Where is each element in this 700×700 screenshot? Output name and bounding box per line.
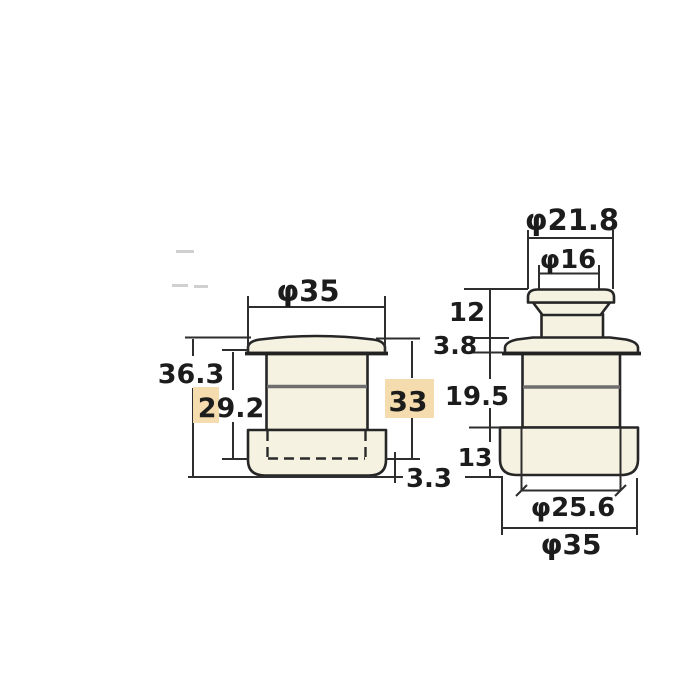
left-side-height-label: 33: [389, 385, 428, 418]
drawing-canvas: φ35 36.3 29.2 33 3.3: [0, 0, 700, 700]
right-base-height-label: 13: [458, 443, 493, 472]
right-view: φ21.8 φ16 12 3.8 19.5 13 φ25.6 φ35: [433, 203, 641, 561]
left-view: φ35 36.3 29.2 33 3.3: [157, 274, 452, 494]
right-dia-base-outer-label: φ35: [541, 528, 602, 561]
scan-artifact: [176, 250, 194, 253]
dimension-drawing: φ35 36.3 29.2 33 3.3: [0, 0, 700, 700]
left-bottom-offset-label: 3.3: [406, 464, 452, 494]
right-knob-height-label: 12: [449, 298, 485, 328]
right-dia-base-inner-label: φ25.6: [531, 493, 616, 523]
right-body-height-label: 19.5: [445, 382, 509, 412]
scan-artifact: [172, 284, 188, 287]
scan-artifacts: [172, 250, 208, 288]
left-inner-height-label: 29.2: [198, 393, 265, 424]
right-stem: [542, 314, 604, 340]
right-cap: [528, 290, 614, 303]
left-total-height-label: 36.3: [158, 359, 225, 390]
right-body: [523, 354, 621, 428]
right-flange-height-label: 3.8: [433, 331, 477, 360]
left-flange: [248, 336, 385, 353]
right-dia-cap-label: φ21.8: [525, 203, 619, 237]
right-dia-stem-label: φ16: [540, 245, 597, 275]
left-dia-top-label: φ35: [276, 274, 339, 308]
left-body: [267, 353, 368, 430]
scan-artifact: [194, 285, 208, 288]
right-cap-transition: [533, 303, 610, 316]
right-flange: [505, 338, 638, 354]
